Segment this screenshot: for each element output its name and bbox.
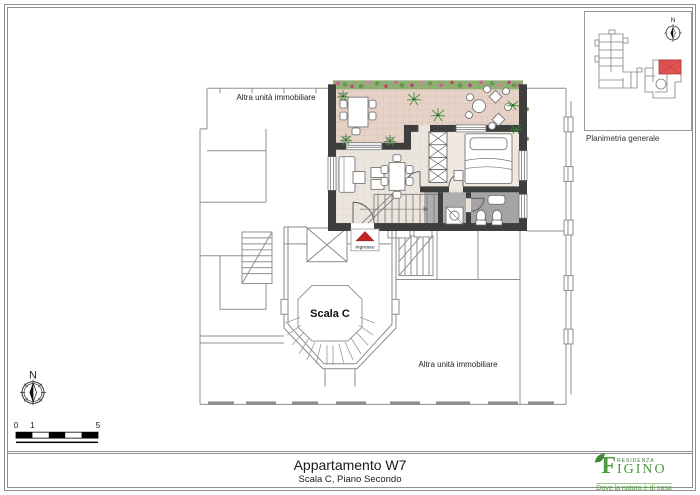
sheet-inner-frame: Ingresso Altra unità immobiliare Altra u… (7, 7, 693, 488)
leaf-icon (594, 452, 606, 464)
inset-building-left (595, 30, 642, 88)
scale-0: 0 (14, 421, 19, 430)
logo-igino-text: IGINO (617, 464, 667, 476)
stairwell-scala-c (281, 227, 399, 387)
inset-building-right (645, 60, 681, 98)
scale-1: 1 (30, 421, 35, 430)
residenza-figino-logo: F RESIDENZA IGINO Dove la natura è di ca… (586, 455, 682, 495)
plan-drawing-area: Ingresso Altra unità immobiliare Altra u… (8, 8, 692, 451)
inset-compass-icon: N (664, 17, 682, 42)
scale-bar: 0 1 5 (14, 421, 101, 443)
entrance-label: Ingresso (355, 244, 374, 250)
logo-tagline: Dove la natura è di casa (596, 483, 672, 492)
other-unit-label-bottom: Altra unità immobiliare (418, 360, 498, 369)
inset-caption: Planimetria generale (586, 134, 659, 143)
north-compass-icon: N (20, 370, 46, 406)
entrance-marker: Ingresso (351, 229, 379, 251)
inset-compass-n: N (671, 17, 676, 24)
site-plan-svg: N (585, 12, 689, 128)
apartment-w7: Ingresso (328, 80, 529, 250)
wardrobe (429, 132, 447, 183)
other-unit-label-top: Altra unità immobiliare (236, 93, 316, 102)
scale-5: 5 (96, 421, 101, 430)
title-block-footer: Appartamento W7 Scala C, Piano Secondo F… (8, 451, 692, 487)
staircase-label: Scala C (310, 308, 350, 320)
drawing-sheet: Ingresso Altra unità immobiliare Altra u… (0, 0, 700, 495)
sheet-outer-frame: Ingresso Altra unità immobiliare Altra u… (4, 4, 696, 491)
logo-letter-f: F (601, 455, 616, 477)
site-plan-inset: N (584, 11, 692, 131)
